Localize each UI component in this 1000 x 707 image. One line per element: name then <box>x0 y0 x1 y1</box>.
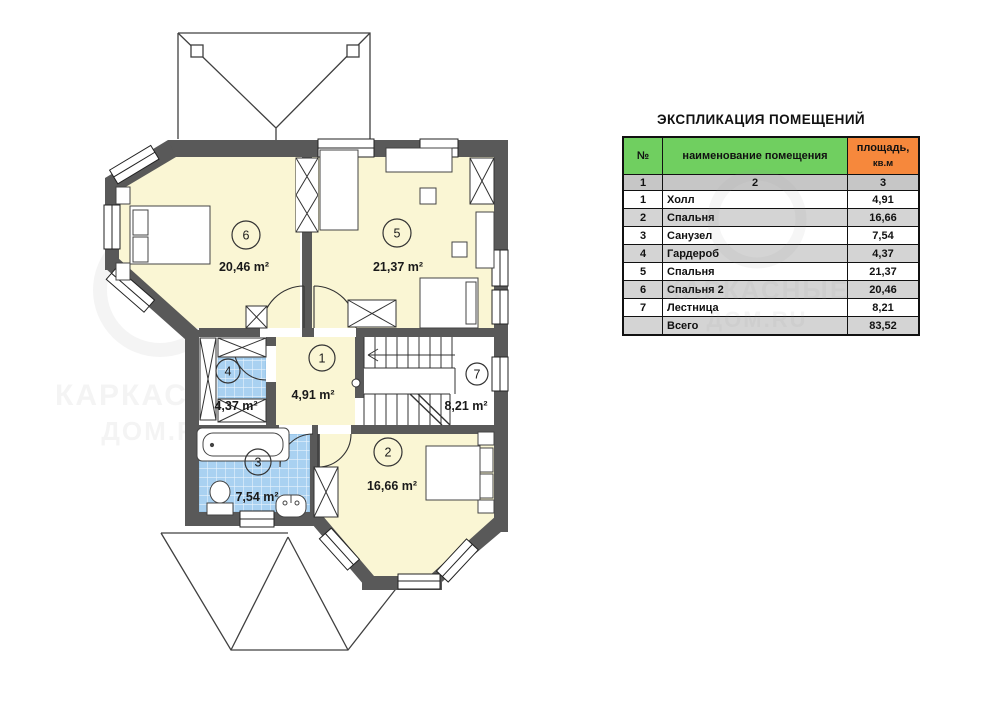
shaft-box <box>246 306 267 328</box>
shaft-box <box>314 467 338 517</box>
explication-panel: ЭКСПЛИКАЦИЯ ПОМЕЩЕНИЙ КАРКАСНЫЕ ДОМ.RU №… <box>622 112 900 336</box>
table-row: 5 Спальня 21,37 <box>623 263 919 281</box>
table-row: 6 Спальня 2 20,46 <box>623 281 919 299</box>
explication-table: № наименование помещения площадь, кв.м 1… <box>622 136 920 336</box>
svg-text:16,66 m²: 16,66 m² <box>367 479 417 493</box>
table-row: 7 Лестница 8,21 <box>623 299 919 317</box>
wardrobe-box <box>348 300 396 327</box>
room-1-floor <box>276 337 355 425</box>
svg-text:4,91 m²: 4,91 m² <box>291 388 334 402</box>
table-title: ЭКСПЛИКАЦИЯ ПОМЕЩЕНИЙ <box>622 112 900 127</box>
svg-text:3: 3 <box>255 456 262 470</box>
window <box>492 357 508 391</box>
svg-text:4: 4 <box>225 365 232 379</box>
window <box>492 290 508 324</box>
svg-text:4,37 m²: 4,37 m² <box>214 399 257 413</box>
table-row: 3 Санузел 7,54 <box>623 227 919 245</box>
col-header-num: № <box>623 137 663 175</box>
total-row: Всего 83,52 <box>623 317 919 336</box>
svg-text:8,21 m²: 8,21 m² <box>444 399 487 413</box>
header-row: № наименование помещения площадь, кв.м <box>623 137 919 175</box>
col-header-area: площадь, кв.м <box>848 137 920 175</box>
roof-top <box>178 33 370 140</box>
table-row: 4 Гардероб 4,37 <box>623 245 919 263</box>
bathtub <box>197 428 289 461</box>
shaft-box <box>470 158 494 204</box>
svg-text:7: 7 <box>474 368 481 382</box>
svg-text:1: 1 <box>319 352 326 366</box>
wardrobe-box <box>218 338 266 357</box>
floor-plan-drawing: КАРКАСНЫЕ ДОМ.RU <box>0 0 620 707</box>
chair <box>452 242 467 257</box>
table-row: 2 Спальня 16,66 <box>623 209 919 227</box>
window <box>398 574 440 589</box>
svg-text:5: 5 <box>394 227 401 241</box>
bed <box>420 278 478 328</box>
wardrobe <box>320 150 358 230</box>
index-row: 1 2 3 <box>623 175 919 191</box>
svg-text:6: 6 <box>243 229 250 243</box>
svg-text:7,54 m²: 7,54 m² <box>235 490 278 504</box>
col-header-name: наименование помещения <box>663 137 848 175</box>
desk <box>476 212 494 268</box>
window <box>104 205 120 249</box>
sink <box>276 495 306 517</box>
svg-text:20,46 m²: 20,46 m² <box>219 260 269 274</box>
svg-text:21,37 m²: 21,37 m² <box>373 260 423 274</box>
table-row: 1 Холл 4,91 <box>623 191 919 209</box>
table <box>420 188 436 204</box>
floor-plan-page: КАРКАСНЫЕ ДОМ.RU <box>0 0 1000 707</box>
svg-text:2: 2 <box>385 446 392 460</box>
window <box>240 511 274 527</box>
wardrobe <box>386 148 452 172</box>
shaft-box <box>296 158 318 232</box>
